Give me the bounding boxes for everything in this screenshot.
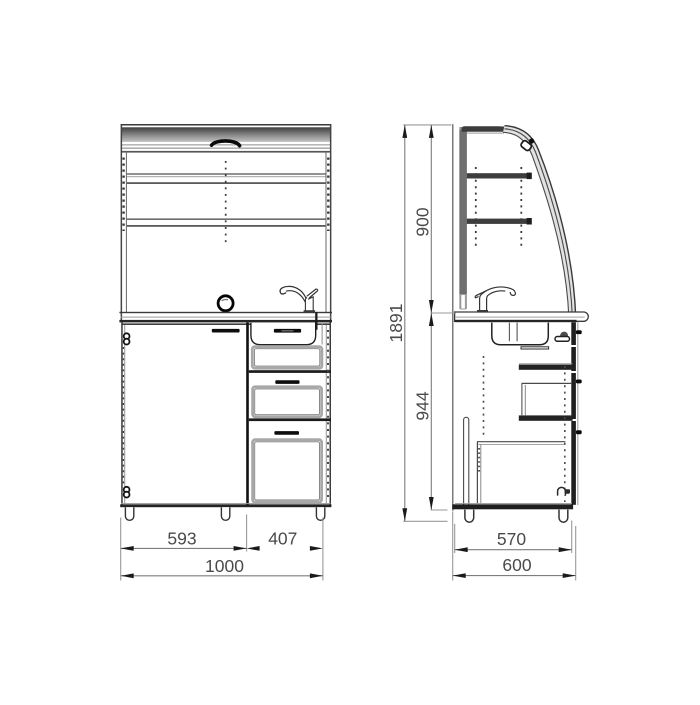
svg-text:944: 944 bbox=[412, 391, 432, 420]
svg-text:600: 600 bbox=[502, 555, 531, 575]
svg-text:1000: 1000 bbox=[205, 556, 244, 576]
svg-text:900: 900 bbox=[412, 207, 432, 236]
svg-text:570: 570 bbox=[497, 529, 526, 549]
svg-text:407: 407 bbox=[268, 528, 297, 548]
svg-text:593: 593 bbox=[167, 528, 196, 548]
svg-text:1891: 1891 bbox=[386, 304, 406, 343]
